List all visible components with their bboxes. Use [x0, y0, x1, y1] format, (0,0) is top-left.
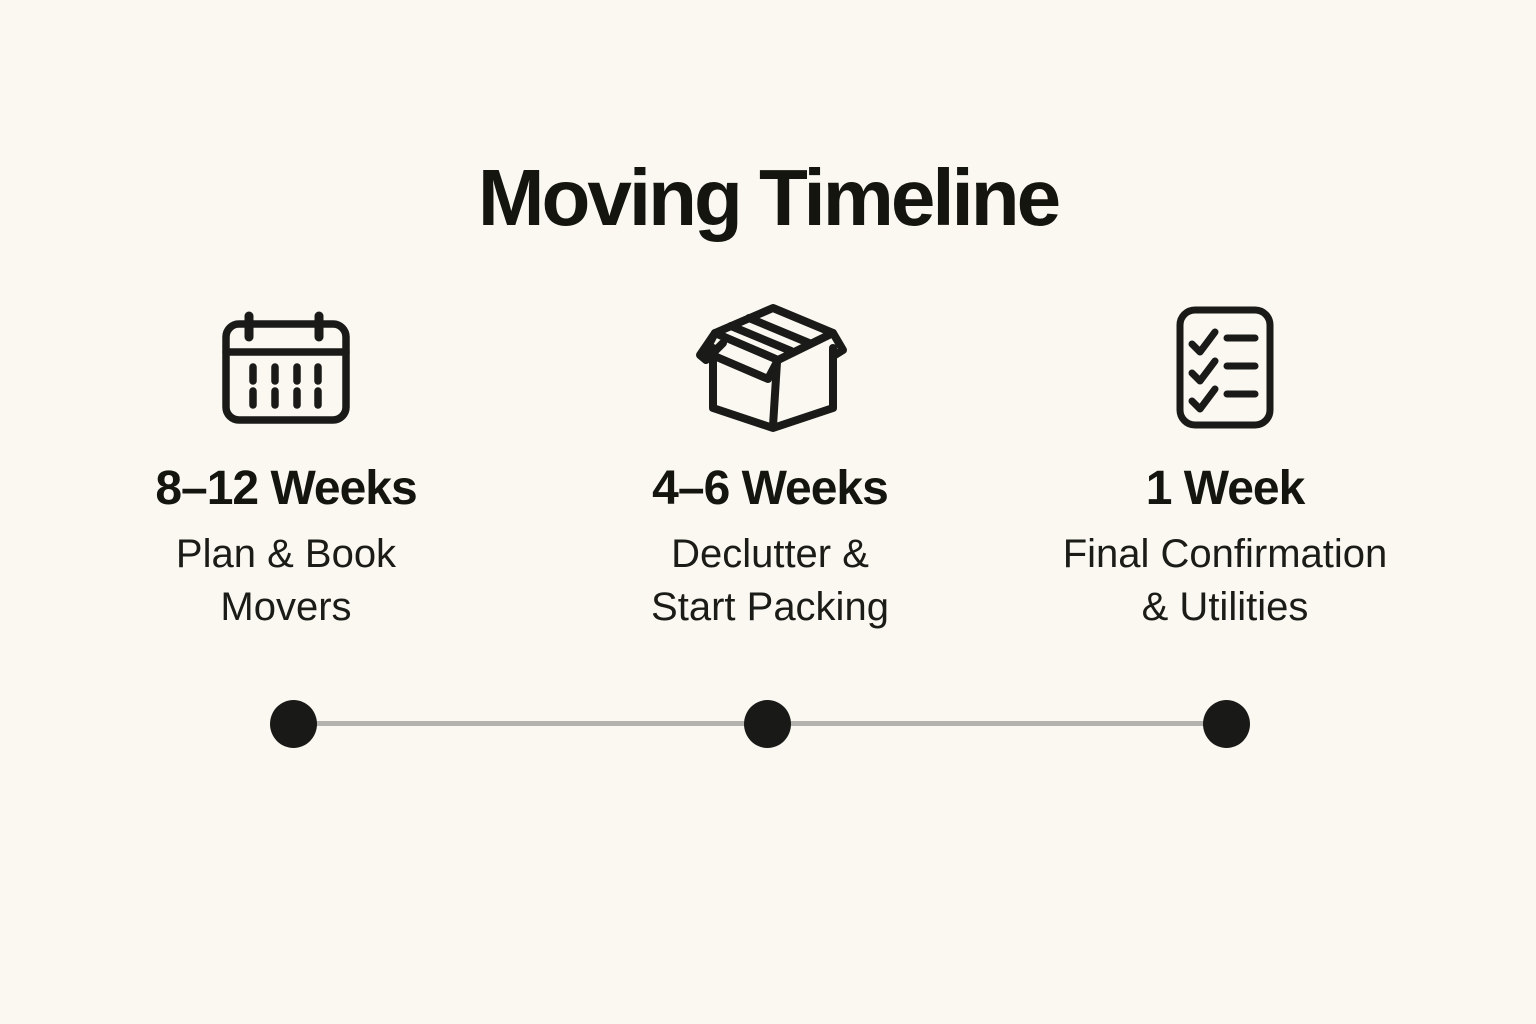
step-timeframe: 1 Week: [1005, 461, 1445, 516]
task-line: Declutter &: [550, 528, 990, 581]
task-line: Start Packing: [550, 581, 990, 634]
task-line: & Utilities: [1005, 581, 1445, 634]
task-line: Movers: [66, 581, 506, 634]
timeline-step-pack: 4–6 Weeks Declutter & Start Packing: [550, 300, 990, 634]
task-line: Plan & Book: [66, 528, 506, 581]
moving-timeline-infographic: Moving Timeline 8–12 Weeks Plan & Book M: [0, 0, 1536, 1024]
timeline-dot-1: [270, 700, 317, 748]
step-task: Plan & Book Movers: [66, 528, 506, 634]
checklist-icon: [1005, 300, 1445, 435]
step-timeframe: 4–6 Weeks: [550, 461, 990, 516]
timeline-step-confirm: 1 Week Final Confirmation & Utilities: [1005, 300, 1445, 634]
step-task: Final Confirmation & Utilities: [1005, 528, 1445, 634]
moving-box-icon: [550, 300, 990, 435]
calendar-icon: [66, 300, 506, 435]
step-task: Declutter & Start Packing: [550, 528, 990, 634]
timeline-step-plan: 8–12 Weeks Plan & Book Movers: [66, 300, 506, 634]
task-line: Final Confirmation: [1005, 528, 1445, 581]
timeline-dot-2: [744, 700, 791, 748]
page-title: Moving Timeline: [0, 158, 1536, 238]
timeline-dot-3: [1203, 700, 1250, 748]
step-timeframe: 8–12 Weeks: [66, 461, 506, 516]
